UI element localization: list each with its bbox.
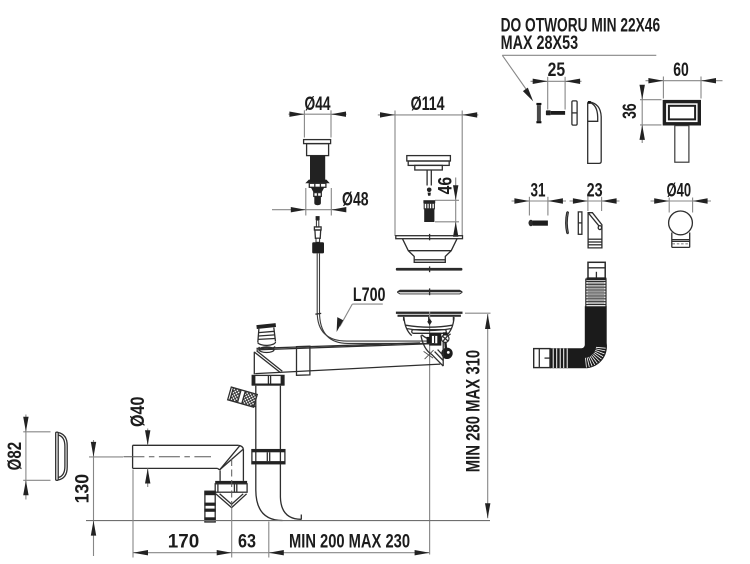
svg-text:63: 63: [238, 531, 256, 553]
svg-text:Ø44: Ø44: [305, 94, 331, 115]
svg-text:MIN 280 MAX 310: MIN 280 MAX 310: [463, 350, 484, 473]
svg-text:L700: L700: [353, 285, 386, 306]
svg-text:170: 170: [168, 531, 200, 553]
svg-text:Ø40: Ø40: [667, 180, 692, 201]
svg-text:23: 23: [587, 180, 603, 201]
svg-text:130: 130: [73, 474, 94, 504]
svg-text:Ø114: Ø114: [411, 94, 445, 115]
svg-text:60: 60: [673, 60, 689, 81]
svg-text:36: 36: [620, 103, 641, 119]
svg-text:MAX 28X53: MAX 28X53: [501, 33, 578, 54]
svg-text:Ø40: Ø40: [128, 397, 149, 428]
svg-text:Ø82: Ø82: [5, 442, 26, 471]
svg-text:31: 31: [531, 180, 546, 201]
svg-text:25: 25: [548, 60, 566, 81]
svg-text:MIN 200 MAX 230: MIN 200 MAX 230: [289, 531, 410, 553]
